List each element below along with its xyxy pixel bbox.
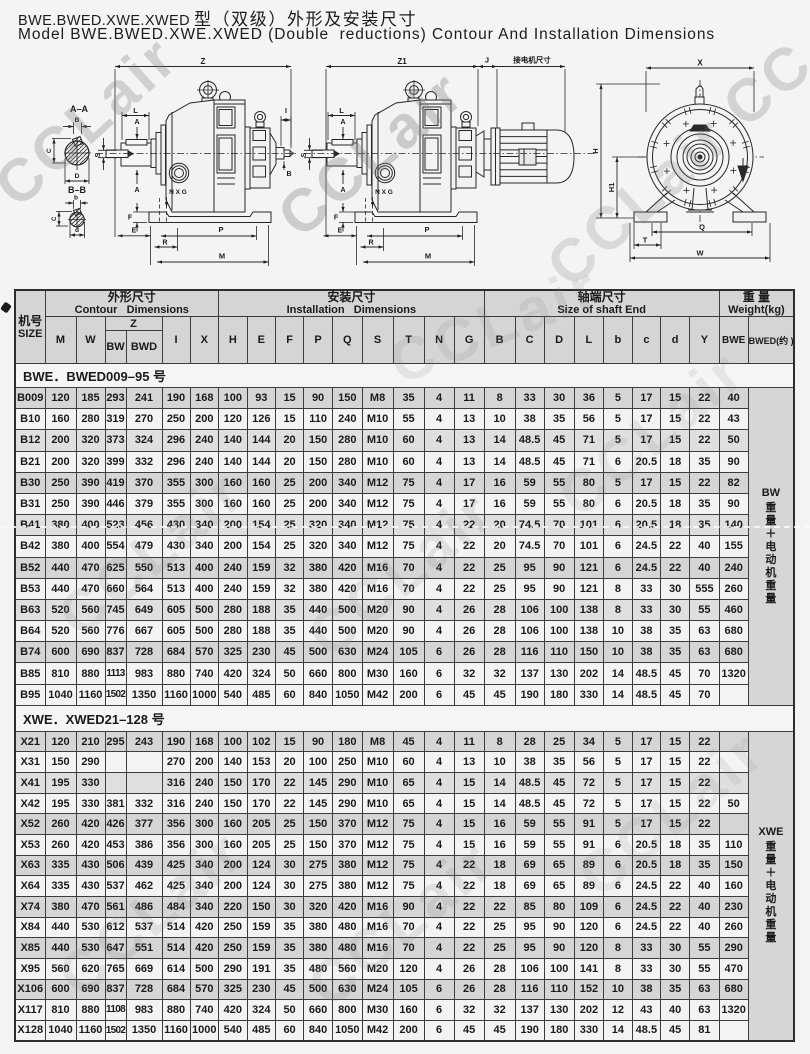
svg-text:P: P: [424, 225, 429, 234]
svg-text:B–B: B–B: [68, 185, 87, 195]
svg-text:H: H: [591, 148, 600, 153]
svg-text:E: E: [338, 228, 343, 235]
svg-text:Z1: Z1: [397, 57, 407, 66]
svg-text:F: F: [128, 215, 133, 222]
svg-text:W: W: [696, 249, 704, 258]
svg-text:M: M: [219, 252, 225, 261]
svg-text:B: B: [75, 117, 80, 124]
svg-text:B: B: [286, 171, 291, 178]
svg-text:d: d: [75, 227, 79, 234]
svg-text:H1: H1: [607, 183, 616, 193]
svg-text:N X G: N X G: [169, 189, 187, 196]
svg-text:R: R: [368, 240, 373, 247]
svg-text:A–A: A–A: [70, 104, 89, 114]
svg-text:T: T: [643, 236, 648, 245]
svg-text:L: L: [133, 106, 138, 115]
svg-text:C: C: [46, 148, 53, 153]
svg-text:A: A: [134, 187, 139, 194]
svg-text:b: b: [74, 195, 78, 202]
svg-text:C: C: [52, 216, 58, 221]
svg-text:A: A: [340, 187, 345, 194]
svg-text:R: R: [162, 240, 167, 247]
svg-text:N X G: N X G: [375, 189, 393, 196]
svg-text:A: A: [134, 119, 139, 126]
svg-text:E: E: [132, 228, 137, 235]
svg-text:A: A: [340, 119, 345, 126]
svg-text:D: D: [75, 173, 80, 180]
svg-text:X: X: [697, 59, 703, 68]
svg-text:P: P: [218, 225, 223, 234]
svg-text:I: I: [285, 108, 287, 115]
svg-text:J: J: [485, 56, 489, 65]
svg-text:S: S: [301, 152, 308, 157]
svg-text:S: S: [95, 152, 102, 157]
svg-text:M: M: [425, 252, 431, 261]
svg-text:接电机尺寸: 接电机尺寸: [513, 55, 551, 65]
svg-text:F: F: [334, 215, 339, 222]
svg-text:L: L: [339, 106, 344, 115]
svg-text:Z: Z: [201, 57, 206, 66]
svg-text:Q: Q: [699, 223, 705, 232]
